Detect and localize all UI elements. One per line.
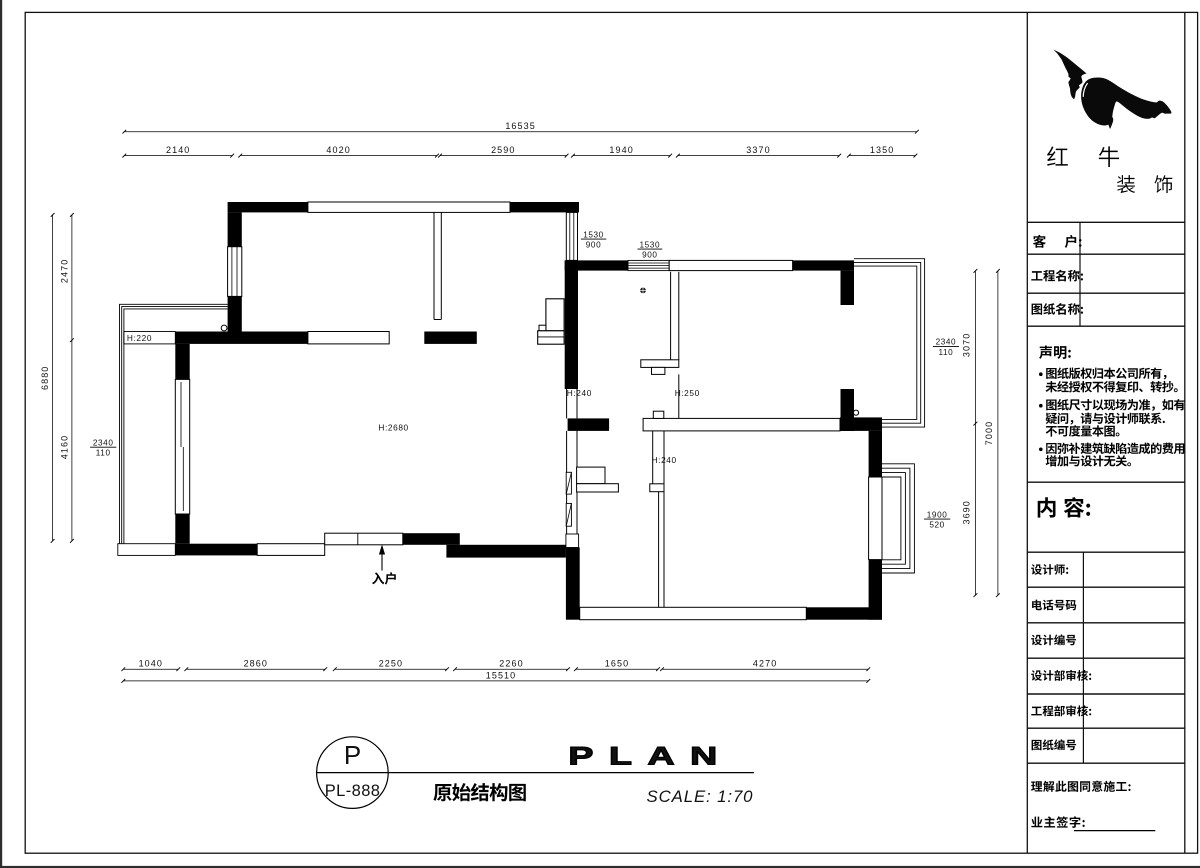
svg-text:110: 110 [96,449,111,458]
svg-text:H:240: H:240 [652,455,677,465]
svg-text:2590: 2590 [491,145,515,155]
svg-text:15510: 15510 [486,670,517,680]
svg-text:6880: 6880 [40,366,50,390]
svg-text:2470: 2470 [59,259,69,283]
svg-text:1900: 1900 [927,510,948,519]
svg-text:H:220: H:220 [127,333,152,343]
svg-text:2340: 2340 [93,438,114,447]
svg-text:520: 520 [929,521,944,530]
svg-text:1350: 1350 [870,145,894,155]
svg-text:2340: 2340 [936,338,957,347]
svg-text:7000: 7000 [984,421,994,445]
svg-text:1940: 1940 [609,145,633,155]
svg-text:3370: 3370 [746,145,770,155]
svg-text:H:240: H:240 [567,388,592,398]
svg-text:110: 110 [938,348,953,357]
svg-text:PLAN: PLAN [568,742,732,770]
svg-text:4160: 4160 [59,435,69,459]
svg-text:3070: 3070 [962,333,972,357]
svg-text:SCALE: 1:70: SCALE: 1:70 [647,787,754,806]
svg-text:4020: 4020 [326,145,350,155]
svg-text:1530: 1530 [639,240,660,249]
svg-text:2260: 2260 [499,659,523,669]
svg-text:1650: 1650 [605,659,629,669]
svg-text:2250: 2250 [379,659,403,669]
svg-text:900: 900 [586,241,601,250]
svg-text:1530: 1530 [583,230,604,239]
svg-text:16535: 16535 [505,121,536,131]
svg-text:3690: 3690 [962,500,972,524]
svg-text:2140: 2140 [166,145,190,155]
svg-text:PL-888: PL-888 [325,782,381,800]
svg-text:P: P [344,740,361,770]
svg-text:H:2680: H:2680 [378,423,408,433]
svg-text:H:250: H:250 [675,388,700,398]
svg-text:4270: 4270 [753,659,777,669]
svg-text:2860: 2860 [244,659,268,669]
svg-text:900: 900 [642,251,657,260]
svg-text:1040: 1040 [139,659,163,669]
